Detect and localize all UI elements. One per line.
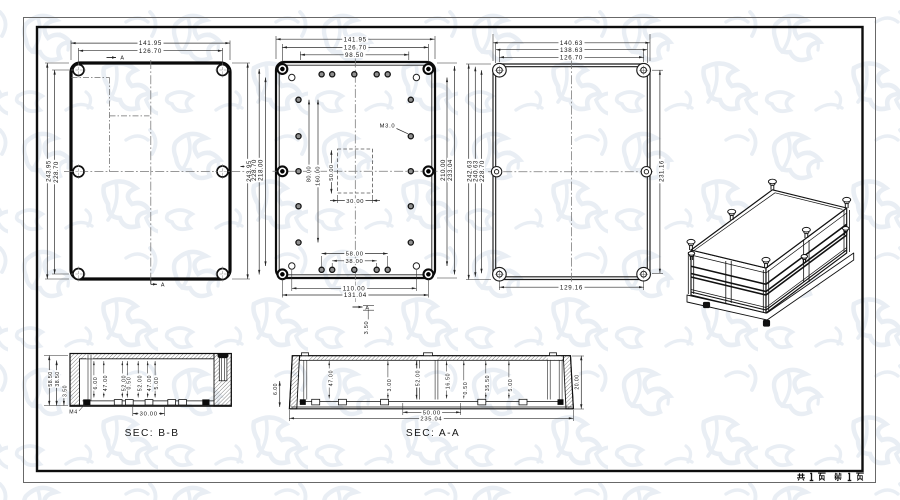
svg-text:SEC: A-A: SEC: A-A <box>406 428 460 439</box>
svg-text:52.00: 52.00 <box>416 370 422 386</box>
svg-text:30.00: 30.00 <box>140 412 158 418</box>
svg-text:35.50: 35.50 <box>485 375 491 391</box>
svg-text:58.50: 58.50 <box>48 371 54 386</box>
svg-text:3.00: 3.00 <box>387 379 393 392</box>
svg-text:218.00: 218.00 <box>258 159 265 181</box>
svg-text:228.70: 228.70 <box>479 160 486 182</box>
svg-text:98.50: 98.50 <box>345 52 364 59</box>
svg-text:235.04: 235.04 <box>420 416 442 422</box>
svg-text:0.50: 0.50 <box>126 377 132 390</box>
svg-text:20.00: 20.00 <box>574 374 580 389</box>
svg-text:30.00: 30.00 <box>346 199 364 205</box>
svg-text:A: A <box>161 283 165 289</box>
svg-text:131.04: 131.04 <box>344 292 367 299</box>
svg-text:50.00: 50.00 <box>329 164 335 180</box>
svg-text:126.70: 126.70 <box>139 48 162 55</box>
svg-text:233.04: 233.04 <box>447 159 454 181</box>
svg-text:38.00: 38.00 <box>345 259 363 265</box>
svg-text:6.00: 6.00 <box>93 377 99 390</box>
svg-text:138.63: 138.63 <box>560 47 583 54</box>
svg-text:47.00: 47.00 <box>147 375 153 391</box>
svg-text:5.00: 5.00 <box>508 379 514 392</box>
svg-text:38.50: 38.50 <box>55 371 61 386</box>
svg-text:SEC: B-B: SEC: B-B <box>125 428 180 439</box>
svg-text:160.00: 160.00 <box>316 166 322 186</box>
svg-text:A: A <box>120 56 124 62</box>
svg-text:47.00: 47.00 <box>103 375 109 391</box>
svg-text:126.70: 126.70 <box>560 54 583 61</box>
svg-text:3.50: 3.50 <box>62 385 68 397</box>
svg-text:6.00: 6.00 <box>273 383 279 395</box>
svg-text:16.50: 16.50 <box>446 373 452 389</box>
svg-text:141.95: 141.95 <box>344 36 367 43</box>
svg-text:0.50: 0.50 <box>463 382 469 395</box>
svg-text:80.00: 80.00 <box>306 166 312 182</box>
svg-text:3.50: 3.50 <box>364 321 370 335</box>
svg-text:M4: M4 <box>69 410 78 416</box>
svg-text:5.00: 5.00 <box>154 377 160 390</box>
svg-text:52.00: 52.00 <box>137 375 143 391</box>
svg-text:141.95: 141.95 <box>139 40 162 47</box>
svg-text:228.70: 228.70 <box>53 161 60 183</box>
svg-text:126.70: 126.70 <box>344 45 367 52</box>
svg-text:243.95: 243.95 <box>46 160 53 182</box>
svg-text:58.00: 58.00 <box>346 252 364 258</box>
svg-text:129.16: 129.16 <box>560 284 583 291</box>
svg-text:M3.0: M3.0 <box>380 124 396 130</box>
svg-text:231.16: 231.16 <box>658 160 665 182</box>
svg-text:47.00: 47.00 <box>328 370 334 386</box>
